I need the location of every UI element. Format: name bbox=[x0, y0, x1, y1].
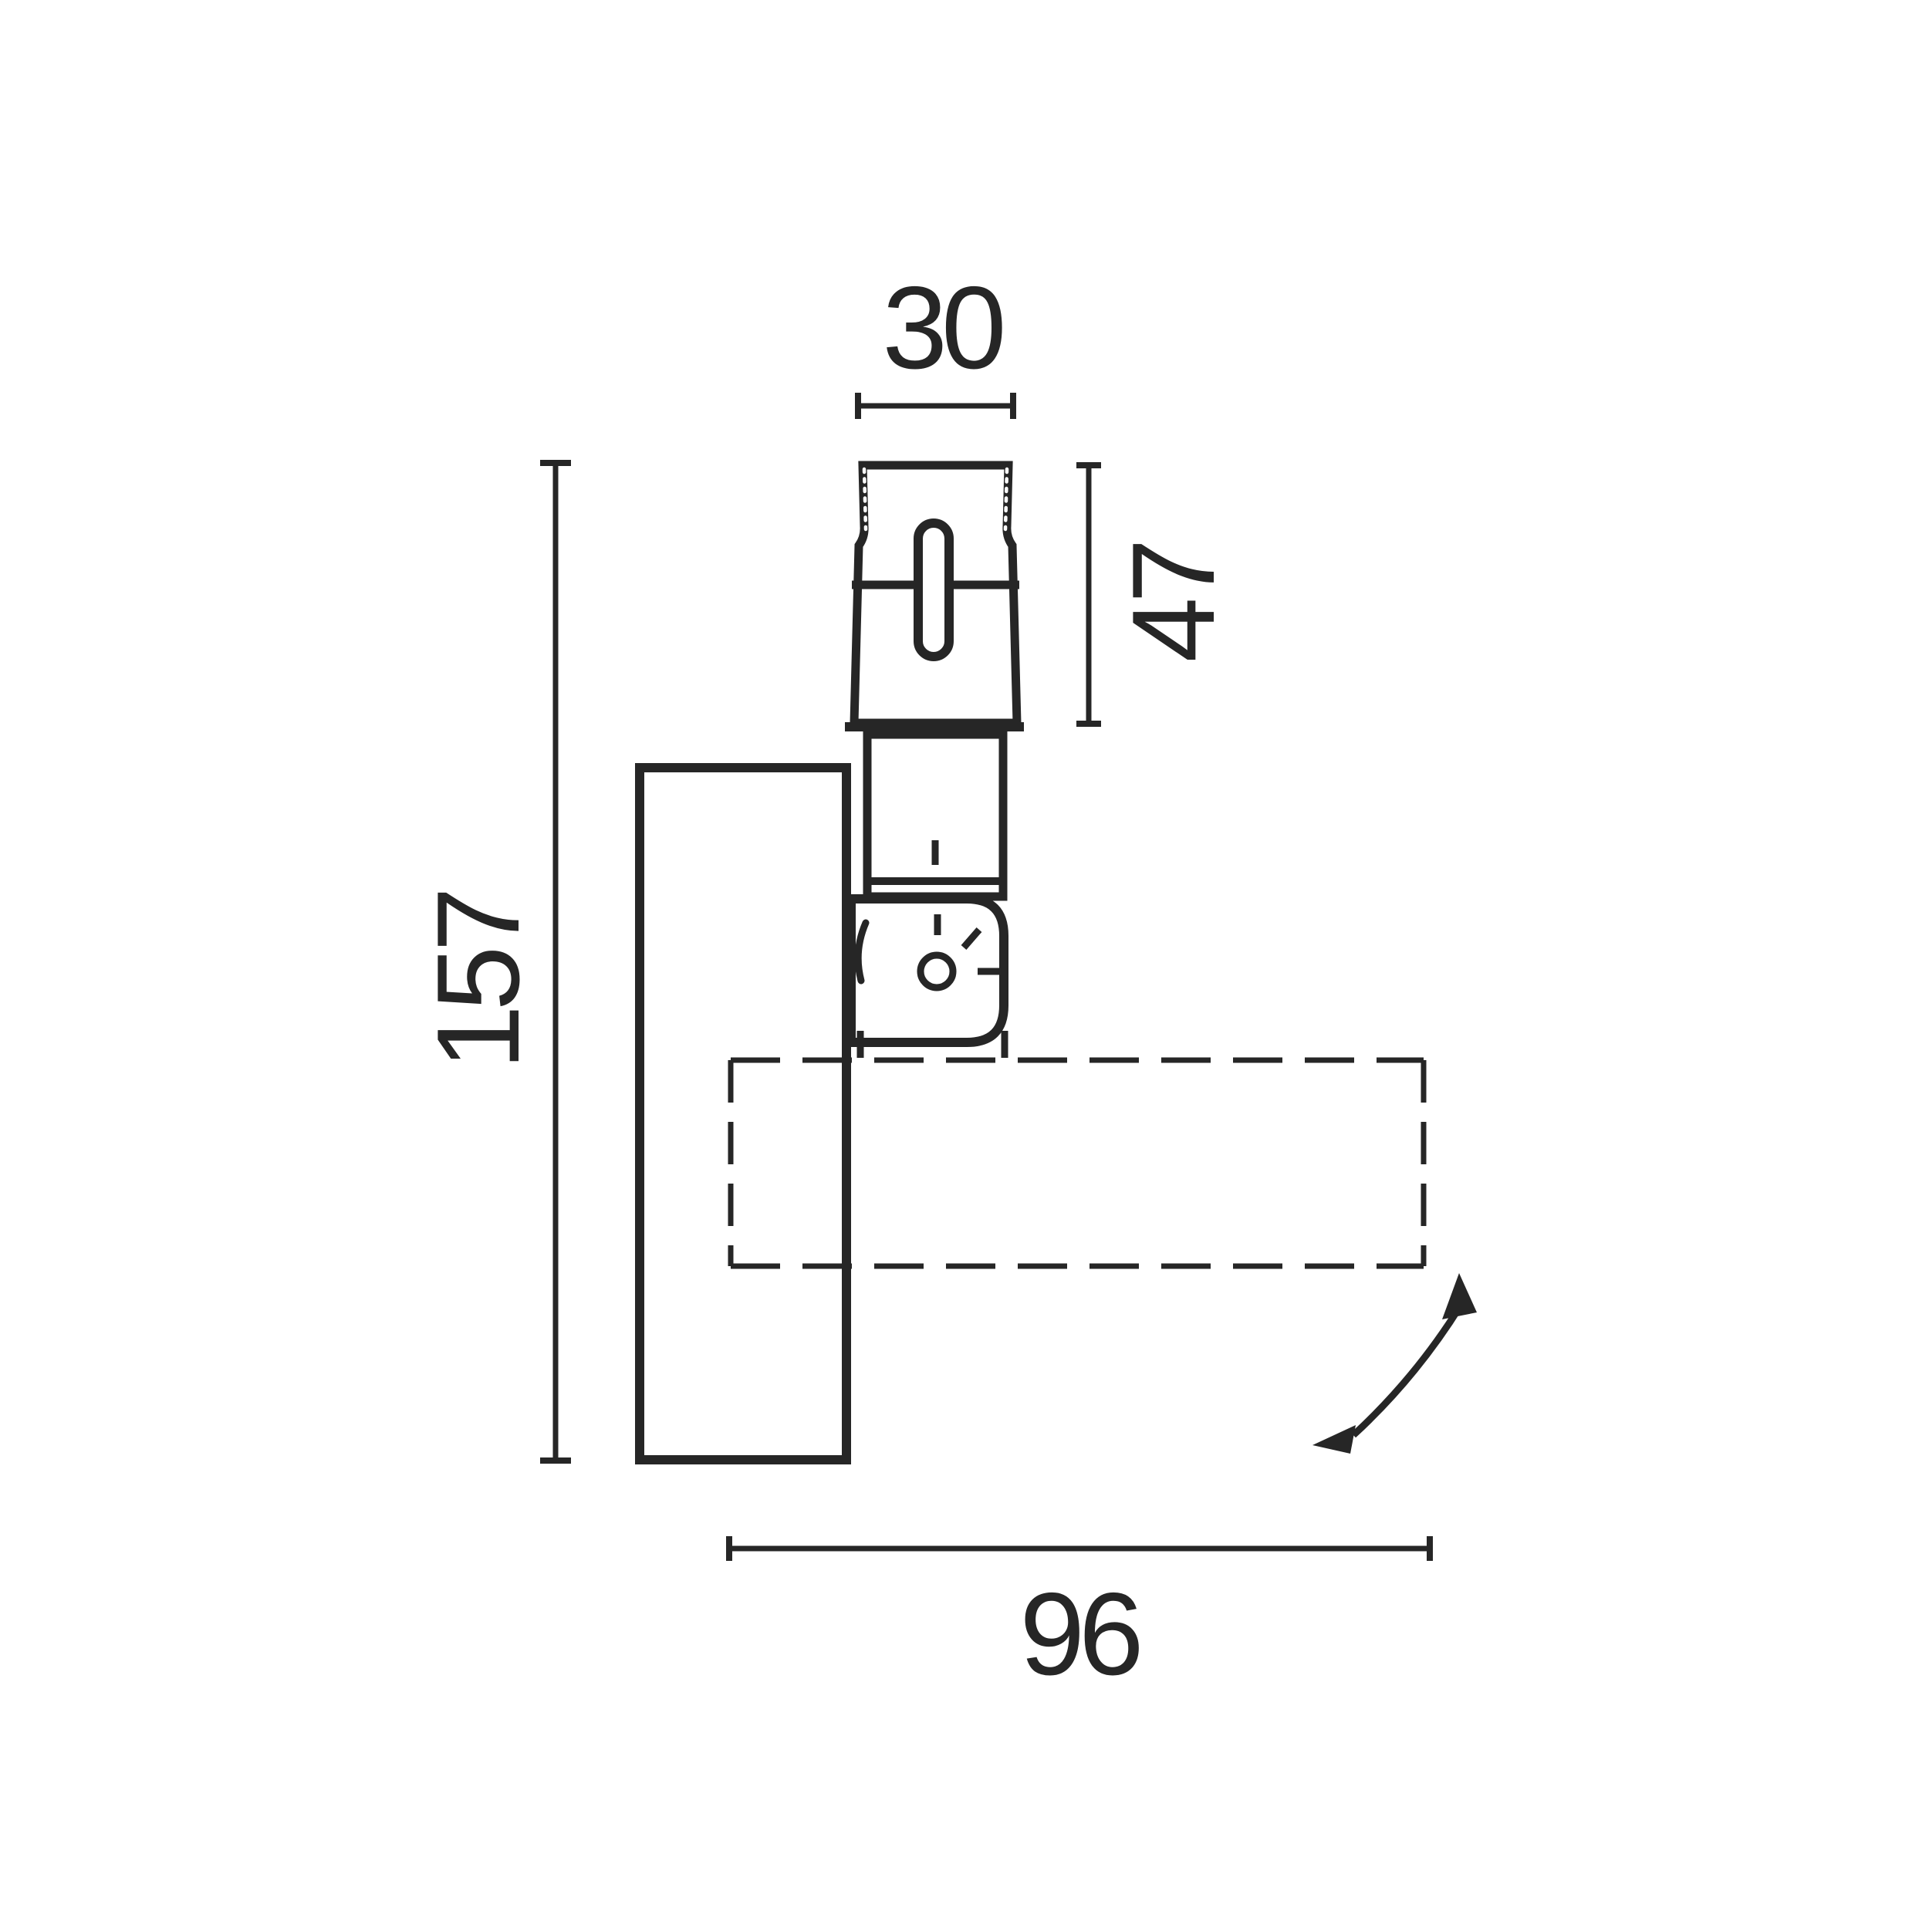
window-handle-drawing: 30 47 157 96 bbox=[0, 0, 1929, 1932]
drawing-page: 30 47 157 96 bbox=[0, 0, 1929, 1932]
pivot-joint bbox=[851, 899, 1005, 1058]
dimension-label-96: 96 bbox=[1019, 1569, 1139, 1700]
backplate bbox=[640, 768, 846, 1460]
knob-slot bbox=[918, 523, 949, 657]
knurl-left bbox=[864, 469, 866, 529]
pivot-circle bbox=[921, 955, 953, 988]
dimension-label-30: 30 bbox=[882, 262, 1002, 393]
handle-neck bbox=[867, 735, 1003, 897]
dimension-label-47: 47 bbox=[1108, 544, 1239, 663]
dimension-label-157: 157 bbox=[413, 893, 544, 1070]
handle-knob bbox=[845, 465, 1024, 727]
knurl-right bbox=[1005, 469, 1007, 529]
